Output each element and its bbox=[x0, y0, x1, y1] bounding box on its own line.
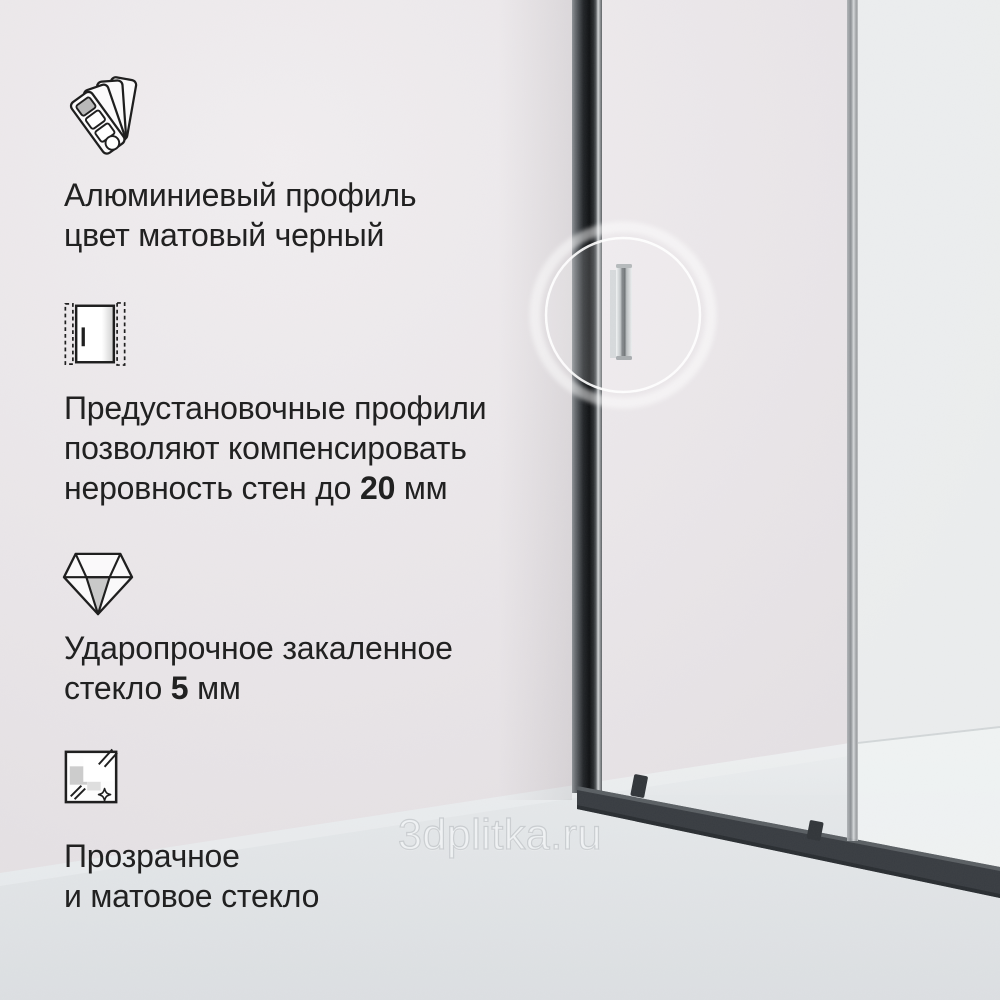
preinstall-profile-icon bbox=[63, 295, 127, 373]
tempered-glass-diamond-icon bbox=[59, 550, 137, 618]
feature-text-line: и матовое стекло bbox=[64, 876, 319, 916]
feature-text-line: Предустановочные профили bbox=[64, 388, 486, 428]
color-swatches-icon bbox=[58, 80, 142, 166]
glass-finish-icon bbox=[63, 746, 121, 808]
feature-text-glass-finish: Прозрачное и матовое стекло bbox=[64, 836, 319, 916]
feature-text-tempered-glass: Ударопрочное закаленное стекло 5 мм bbox=[64, 628, 453, 708]
feature-text-line: неровность стен до 20 мм bbox=[64, 468, 486, 508]
feature-text-preinstall: Предустановочные профили позволяют компе… bbox=[64, 388, 486, 508]
feature-text-line: позволяют компенсировать bbox=[64, 428, 486, 468]
feature-text-line: Ударопрочное закаленное bbox=[64, 628, 453, 668]
feature-text-line: Прозрачное bbox=[64, 836, 319, 876]
feature-text-line: стекло 5 мм bbox=[64, 668, 453, 708]
feature-text-line: Алюминиевый профиль bbox=[64, 175, 416, 215]
feature-text-line: цвет матовый черный bbox=[64, 215, 416, 255]
feature-text-profile-color: Алюминиевый профиль цвет матовый черный bbox=[64, 175, 416, 255]
watermark: 3dplitka.ru bbox=[398, 811, 602, 860]
product-card: 3dplitka.ru Алюминиевый профиль цвет мат… bbox=[0, 0, 1000, 1000]
